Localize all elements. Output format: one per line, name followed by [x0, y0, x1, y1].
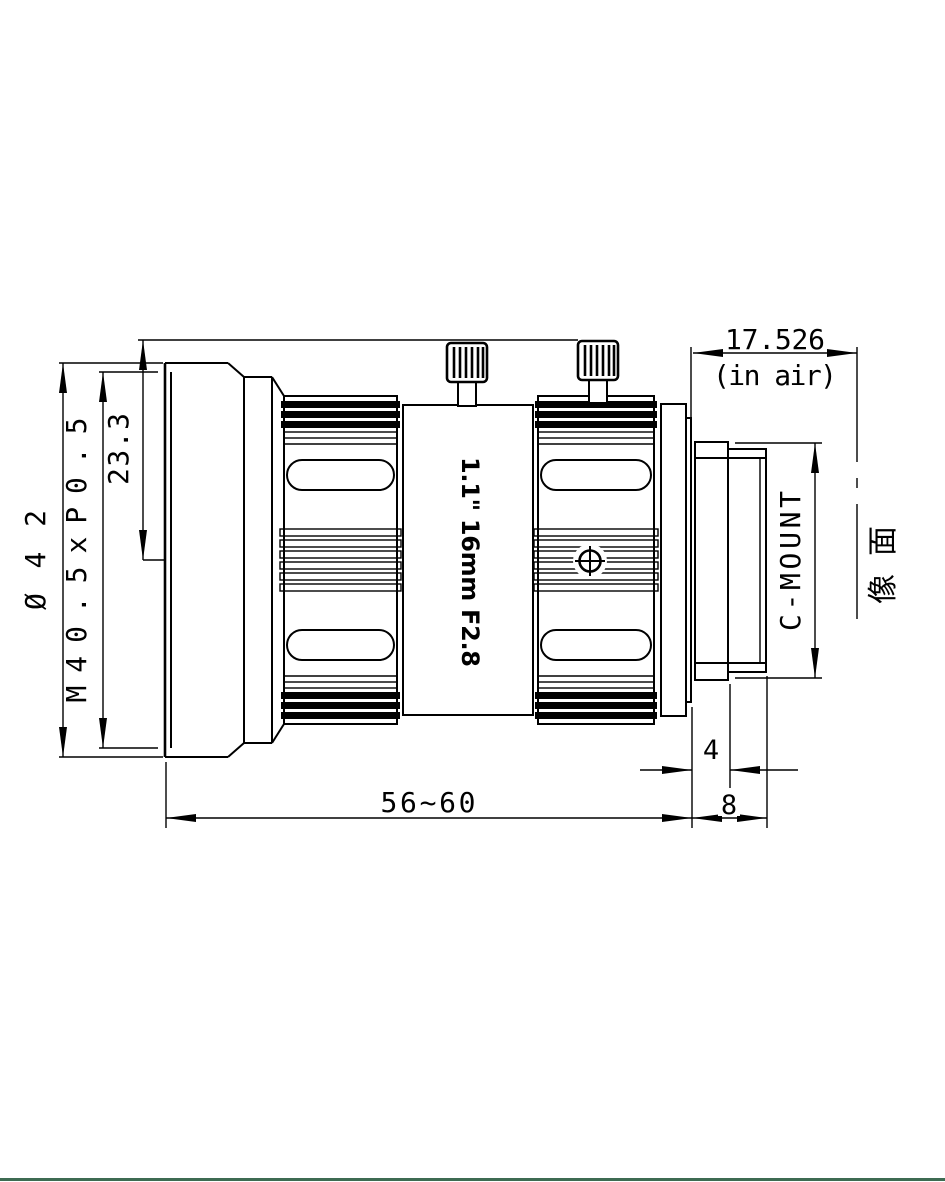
- middle-barrel: 1.1" 16mm F2.8: [403, 405, 533, 715]
- image-plane-label: 像面: [866, 526, 901, 604]
- mount-length-label: 8: [721, 790, 737, 821]
- lock-thumbscrew-rear: [578, 341, 618, 403]
- mount-type-label: C-MOUNT: [774, 491, 807, 631]
- outer-diameter-label: Ø42: [19, 510, 52, 610]
- lens-technical-drawing: 1.1" 16mm F2.8: [0, 0, 945, 1182]
- drawing-page: 1.1" 16mm F2.8: [0, 0, 945, 1182]
- dimension-mount: C-MOUNT: [735, 443, 822, 678]
- lock-screw-icon: [573, 544, 607, 578]
- rear-collar: [661, 404, 691, 716]
- aperture-ring: [534, 396, 658, 724]
- footer-bar: [0, 1178, 945, 1181]
- c-mount-flange: [695, 442, 766, 680]
- lock-thumbscrew-front: [447, 343, 487, 406]
- lens-marking-text: 1.1" 16mm F2.8: [456, 457, 484, 667]
- front-thread-label: M40.5xP0.5: [60, 418, 93, 703]
- focus-ring: [280, 396, 401, 724]
- length-range-label: 56~60: [381, 786, 476, 819]
- flange-back-label: 17.526: [725, 323, 825, 356]
- screw-radius-label: 23.3: [102, 413, 135, 485]
- lens-front-barrel: [165, 363, 284, 757]
- flange-back-note-label: (in air): [713, 359, 837, 392]
- rear-step-label: 4: [703, 735, 719, 766]
